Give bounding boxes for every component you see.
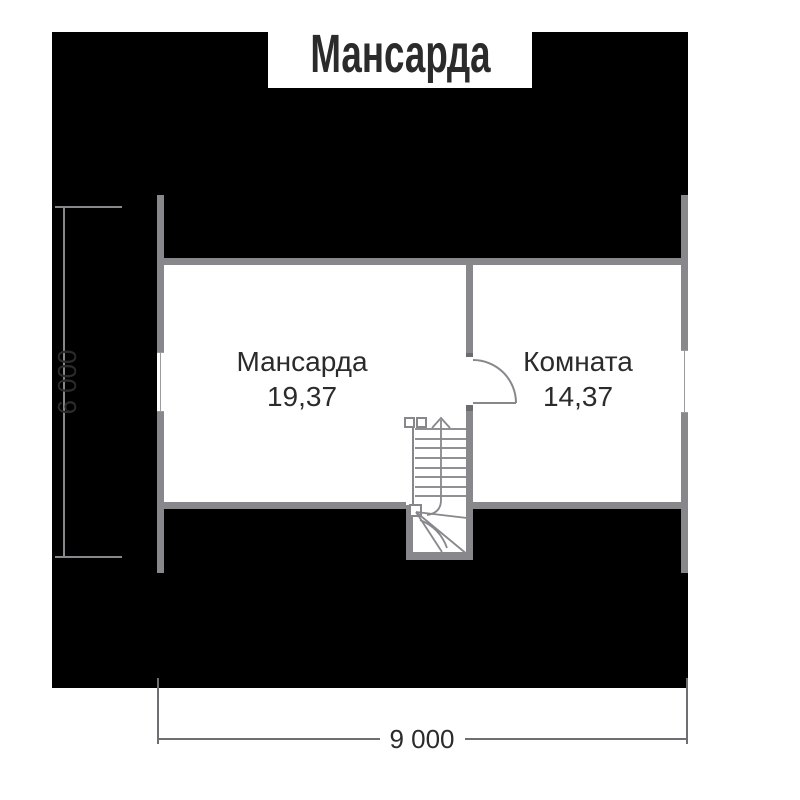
page-title: Мансарда [250, 24, 550, 84]
page-title-text: Мансарда [310, 24, 490, 84]
room-area: 19,37 [182, 379, 422, 414]
room-area: 14,37 [458, 379, 698, 414]
dimension-width-label: 9 000 [362, 724, 482, 754]
stair-direction-and-winders [395, 405, 485, 565]
dimension-vertical-tick-bottom [55, 556, 122, 558]
dimension-height-label: 6 000 [52, 337, 82, 427]
dimension-horizontal-tick-left [157, 678, 159, 744]
wall-bottom-right-segment [473, 502, 681, 509]
window-left-glass-line [160, 352, 161, 412]
wall-bottom-left-segment [164, 502, 406, 509]
dimension-horizontal-tick-right [686, 678, 688, 744]
room-label-komnata: Комната 14,37 [458, 344, 698, 414]
partition-wall [466, 265, 473, 353]
room-label-attic: Мансарда 19,37 [182, 344, 422, 414]
dimension-horizontal-line-right [465, 738, 688, 740]
wall-top [164, 258, 681, 265]
room-name: Комната [458, 344, 698, 379]
dimension-vertical-tick-top [55, 206, 122, 208]
attic-floor-plan: Мансарда [0, 0, 800, 800]
room-name: Мансарда [182, 344, 422, 379]
dimension-horizontal-line-left [158, 738, 380, 740]
